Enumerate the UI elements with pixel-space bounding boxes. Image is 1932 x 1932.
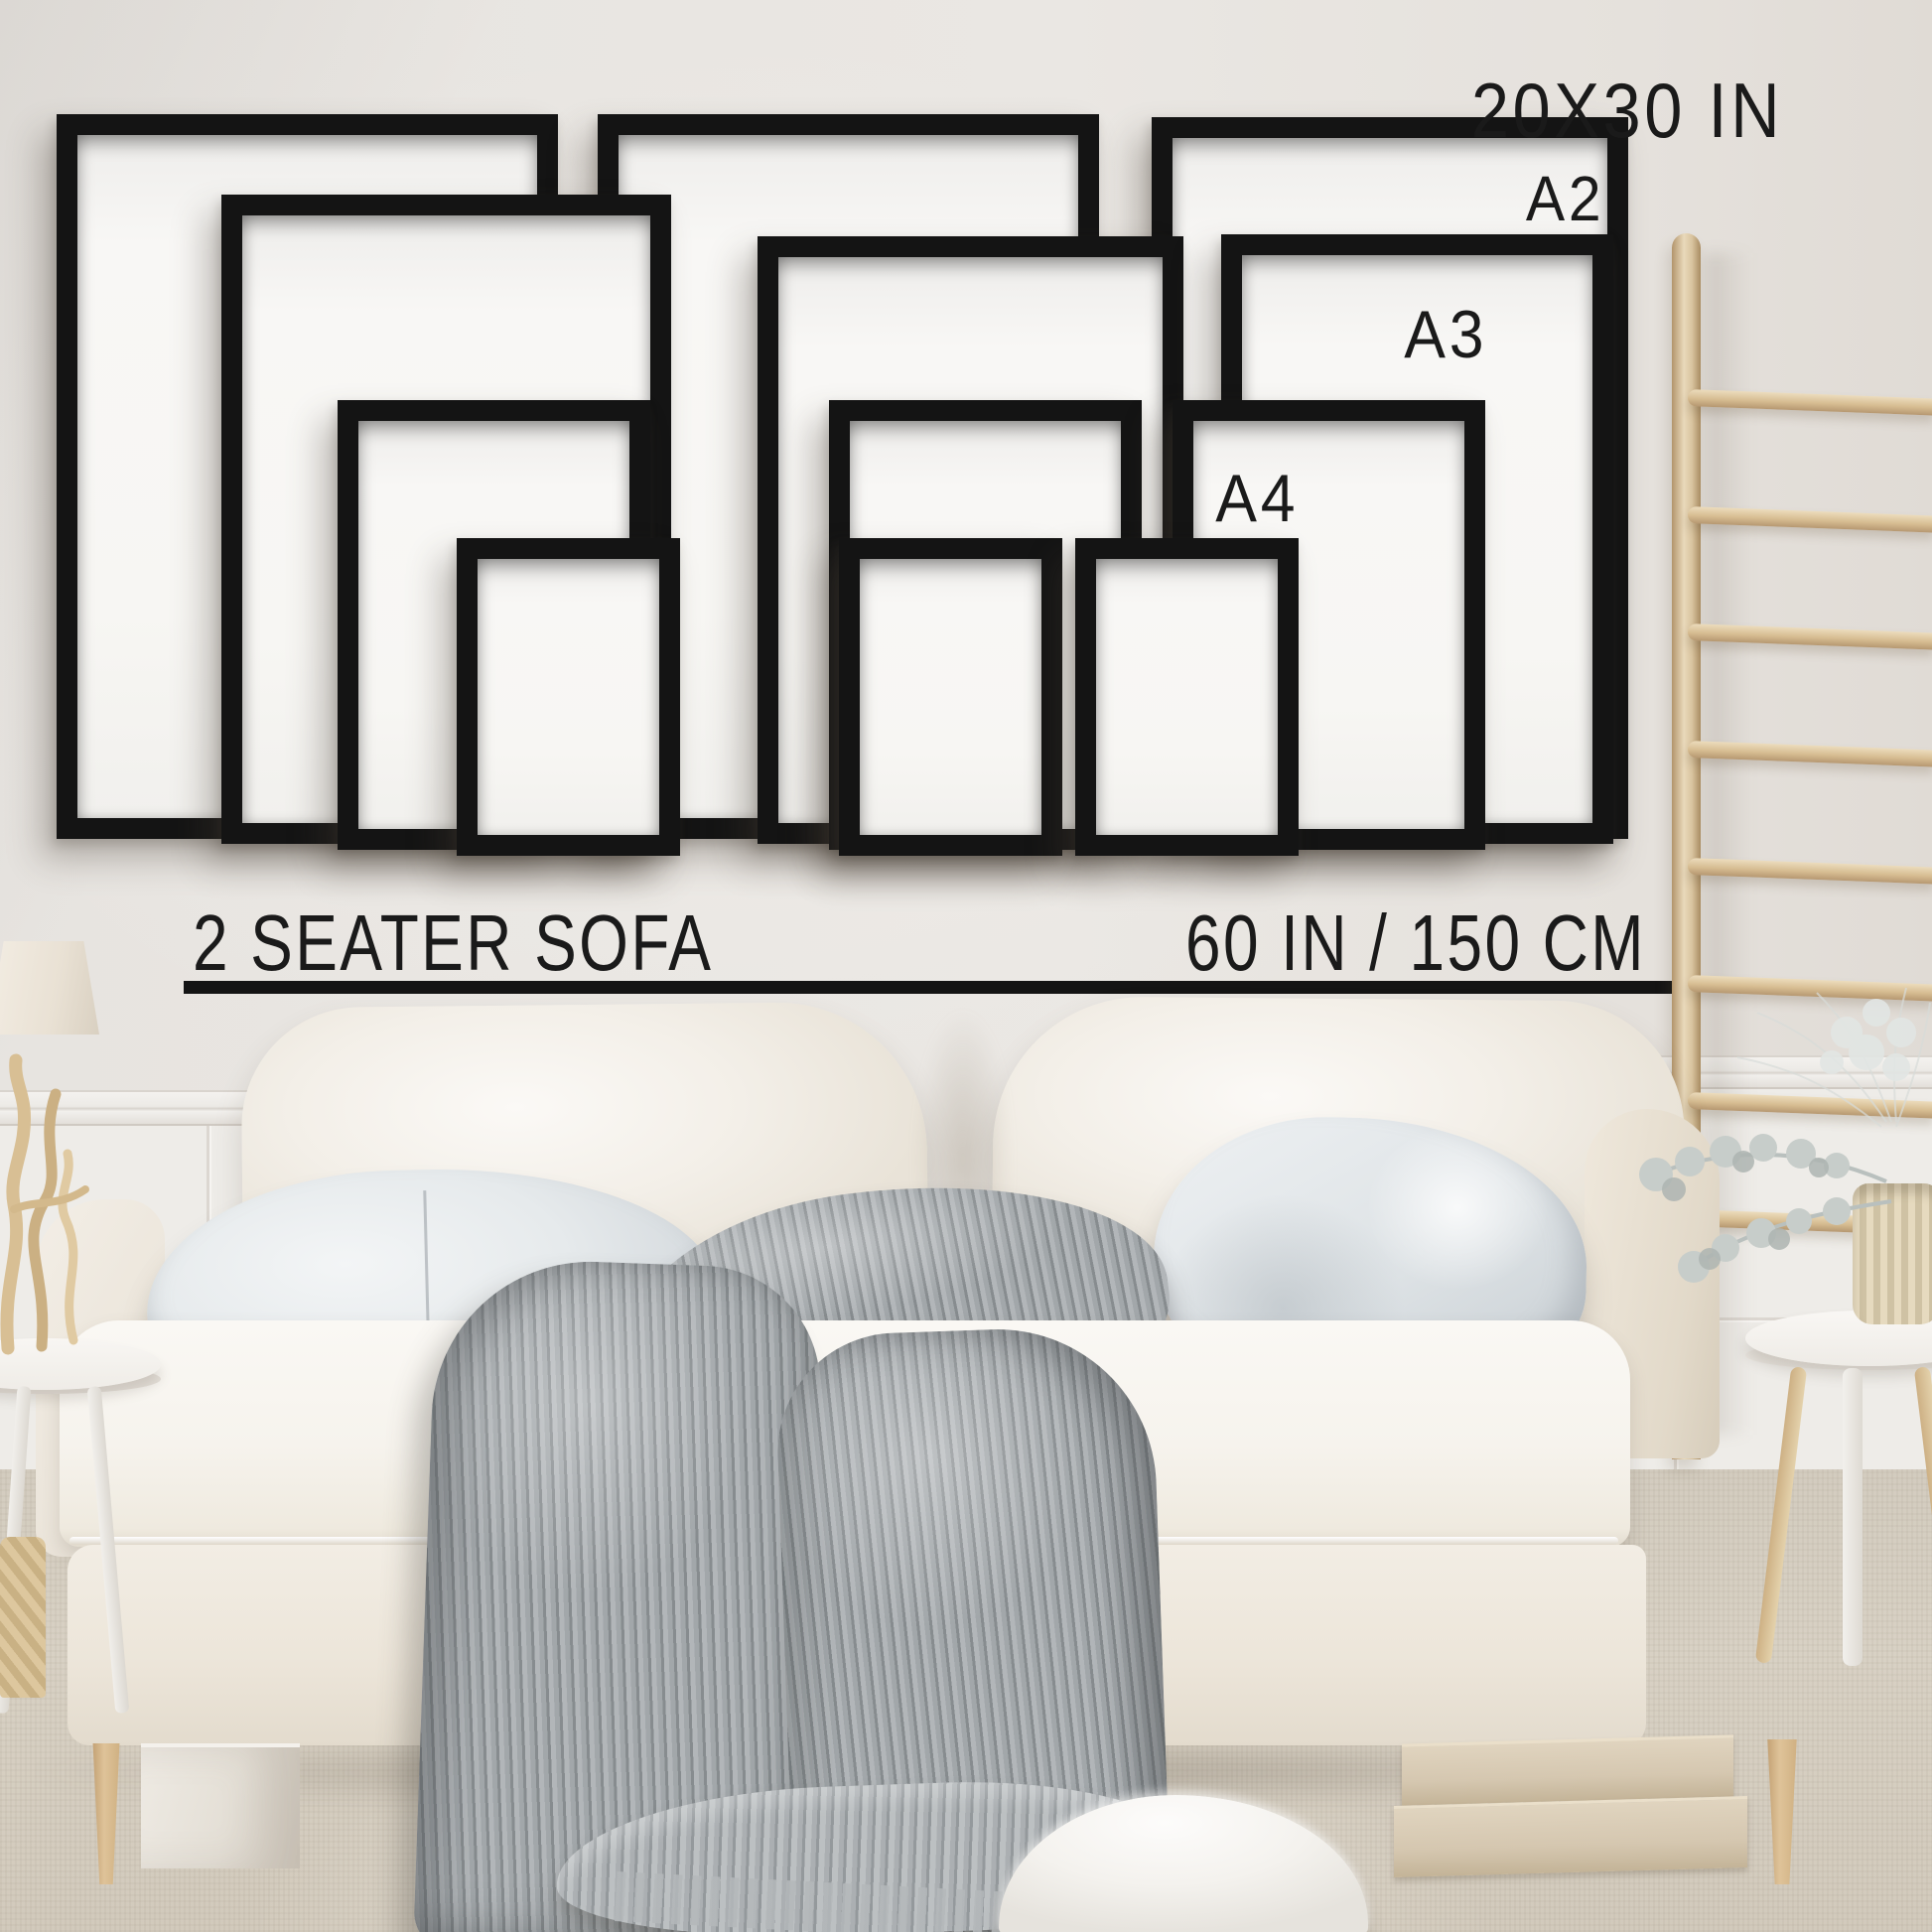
size-guide-scene: 20X30 IN A2 A3 A4 2 SEATER SOFA 60 IN / … <box>0 0 1932 1932</box>
storage-box-right-top <box>1402 1734 1733 1805</box>
storage-box-under-sofa-left <box>141 1743 300 1868</box>
ladder-rung <box>1688 858 1932 885</box>
side-table-right-center-leg <box>1843 1368 1863 1666</box>
woven-basket <box>0 1537 46 1698</box>
dried-flowers <box>1549 973 1932 1311</box>
ladder-rung <box>1688 506 1932 533</box>
ladder-rung <box>1688 741 1932 767</box>
ladder-rung <box>1688 389 1932 416</box>
storage-box-right-bottom <box>1394 1796 1747 1877</box>
floor-lamp-shade <box>0 941 99 1035</box>
driftwood-decor <box>0 1050 103 1358</box>
ladder-rung <box>1688 623 1932 650</box>
